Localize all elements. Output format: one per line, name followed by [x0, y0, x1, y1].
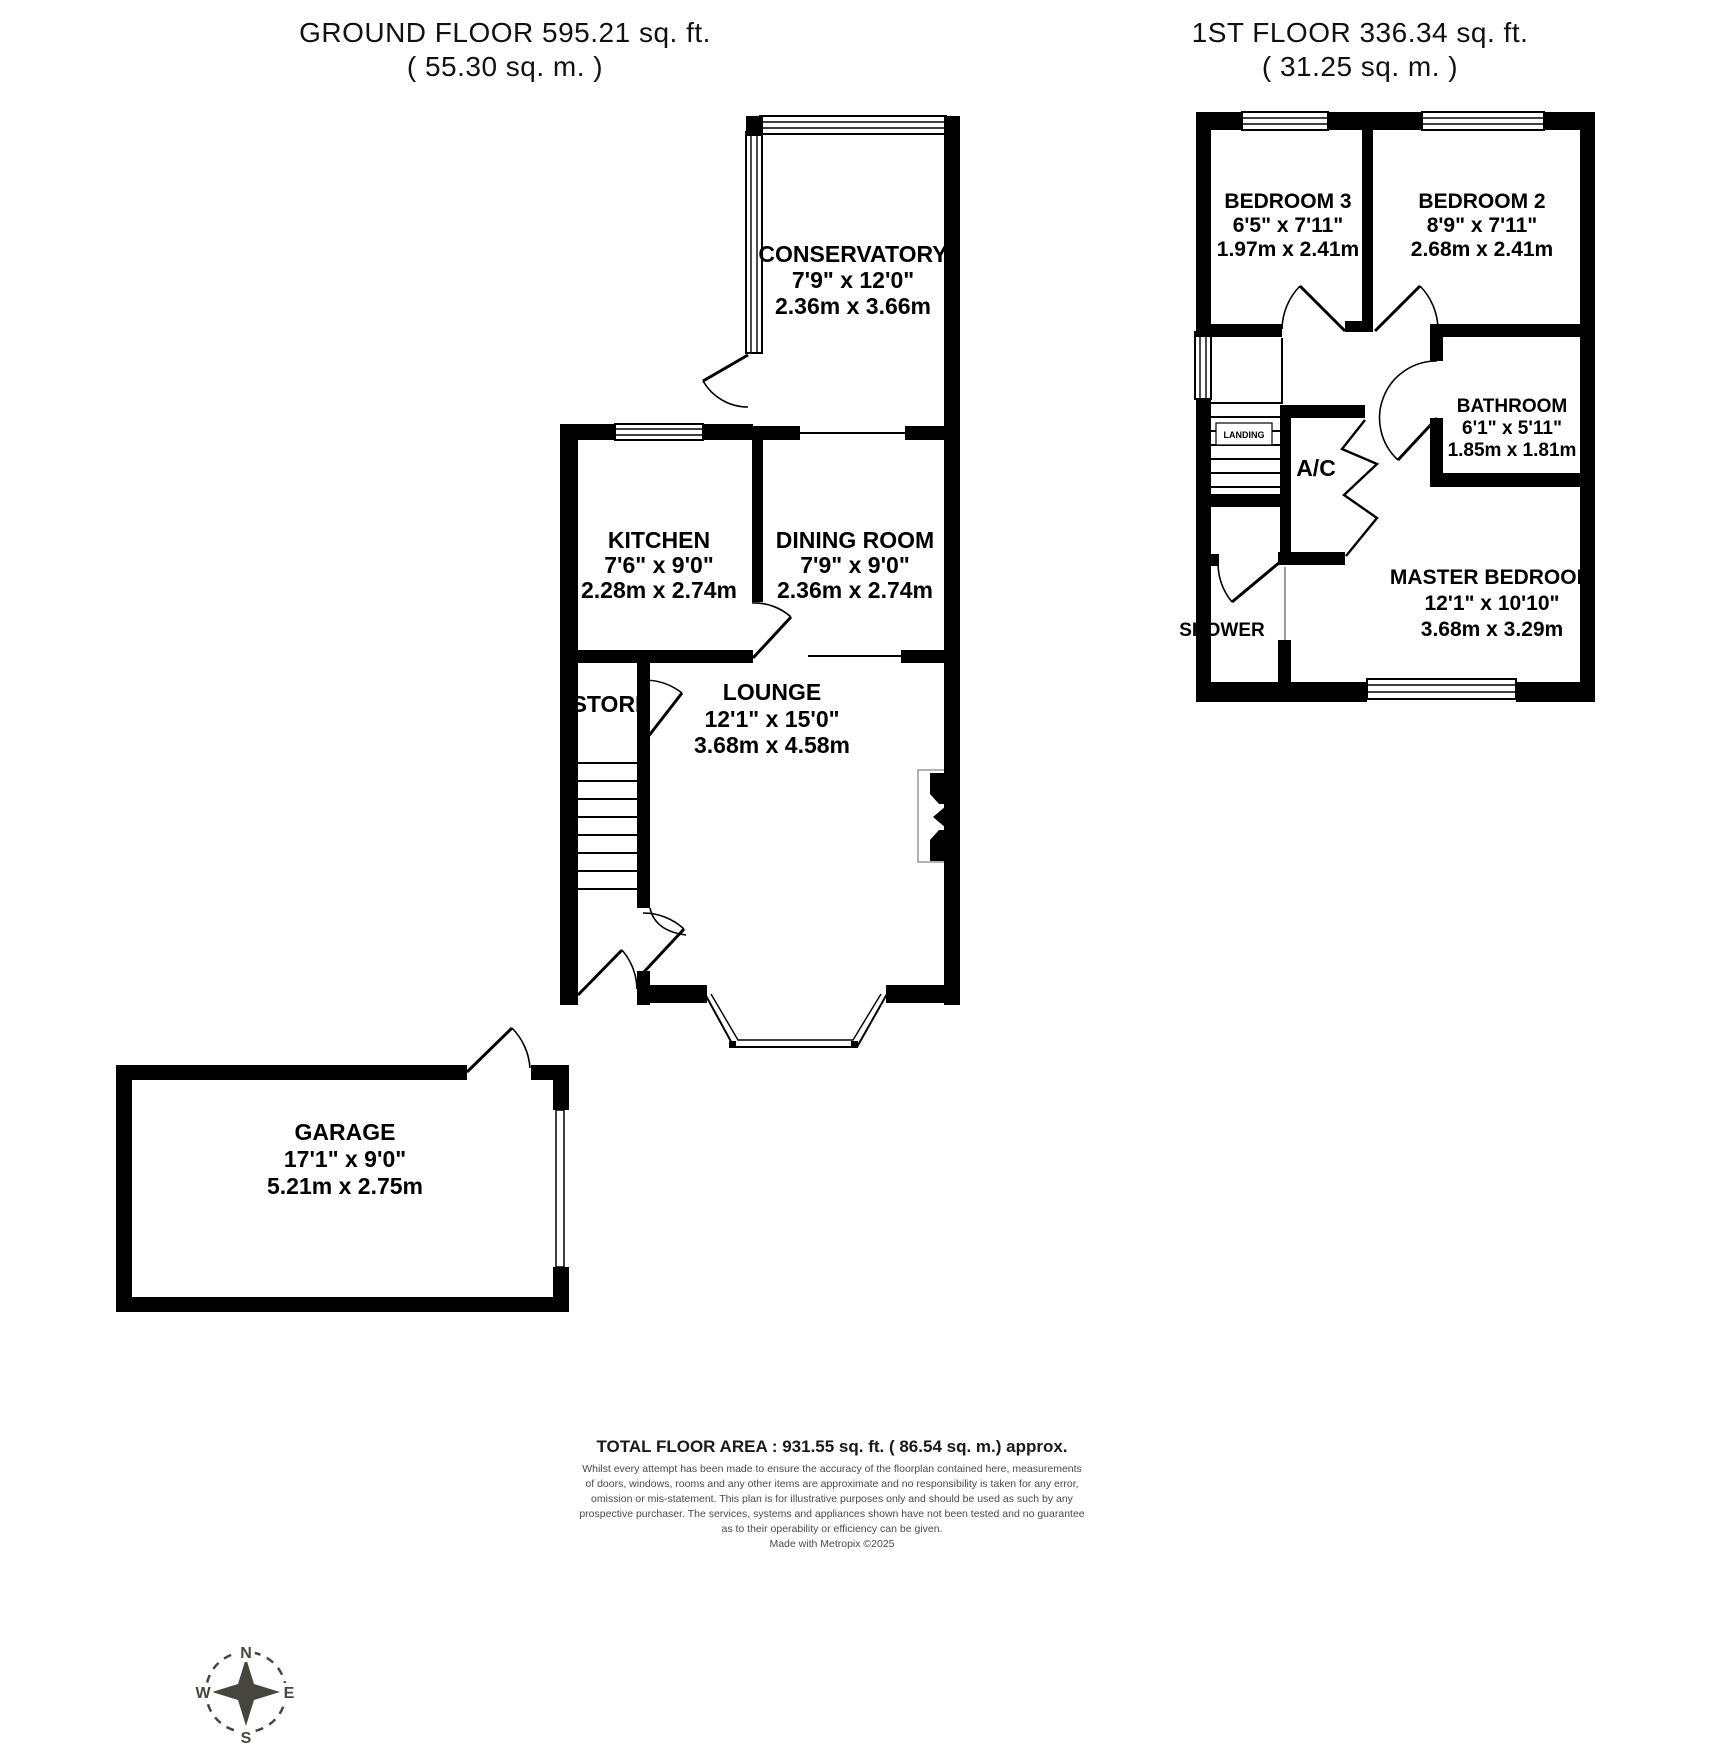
compass-east: E [284, 1685, 295, 1702]
ac-bifold-door [1342, 420, 1377, 556]
disclaimer-line-2: of doors, windows, rooms and any other i… [585, 1478, 1078, 1490]
svg-text:1.97m x 2.41m: 1.97m x 2.41m [1217, 238, 1359, 261]
room-label-kitchen: KITCHEN 7'6" x 9'0" 2.28m x 2.74m [581, 527, 737, 603]
bedroom2-window [1422, 112, 1544, 130]
master-window [1367, 679, 1516, 699]
ground-floor-title: GROUND FLOOR 595.21 sq. ft. [299, 17, 711, 48]
svg-text:1.85m x 1.81m: 1.85m x 1.81m [1448, 440, 1577, 461]
compass-icon: N E W S [195, 1645, 294, 1747]
svg-text:CONSERVATORY: CONSERVATORY [758, 241, 947, 267]
svg-text:12'1" x 10'10": 12'1" x 10'10" [1424, 592, 1559, 615]
total-floor-area: TOTAL FLOOR AREA : 931.55 sq. ft. ( 86.5… [596, 1437, 1067, 1456]
ground-stairs [578, 763, 686, 935]
svg-text:BEDROOM 3: BEDROOM 3 [1224, 190, 1351, 213]
room-label-dining: DINING ROOM 7'9" x 9'0" 2.36m x 2.74m [776, 527, 934, 603]
kitchen-window [615, 424, 703, 440]
room-label-lounge: LOUNGE 12'1" x 15'0" 3.68m x 4.58m [694, 679, 850, 758]
disclaimer-line-3: omission or mis-statement. This plan is … [591, 1493, 1074, 1505]
svg-text:BATHROOM: BATHROOM [1457, 396, 1567, 417]
disclaimer-line-4: prospective purchaser. The services, sys… [579, 1508, 1084, 1520]
bedroom3-window [1242, 112, 1328, 130]
svg-text:6'5" x 7'11": 6'5" x 7'11" [1233, 214, 1344, 237]
compass-north: N [240, 1645, 252, 1662]
conservatory-top-window [760, 116, 946, 134]
room-label-bedroom2: BEDROOM 2 8'9" x 7'11" 2.68m x 2.41m [1411, 190, 1553, 261]
svg-text:17'1" x 9'0": 17'1" x 9'0" [284, 1146, 406, 1172]
room-label-ac: A/C [1296, 455, 1336, 481]
svg-text:BEDROOM 2: BEDROOM 2 [1418, 190, 1545, 213]
svg-text:5.21m x 2.75m: 5.21m x 2.75m [267, 1173, 423, 1199]
room-label-shower: SHOWER [1179, 620, 1265, 641]
compass-west: W [195, 1685, 211, 1702]
disclaimer-line-1: Whilst every attempt has been made to en… [582, 1463, 1082, 1475]
svg-text:12'1" x 15'0": 12'1" x 15'0" [704, 706, 839, 732]
footer: TOTAL FLOOR AREA : 931.55 sq. ft. ( 86.5… [579, 1437, 1084, 1550]
svg-text:2.28m x 2.74m: 2.28m x 2.74m [581, 577, 737, 603]
svg-text:6'1" x 5'11": 6'1" x 5'11" [1462, 418, 1562, 439]
svg-text:2.36m x 3.66m: 2.36m x 3.66m [775, 293, 931, 319]
room-label-landing: LANDING [1216, 423, 1272, 445]
labels: GROUND FLOOR 595.21 sq. ft. ( 55.30 sq. … [267, 17, 1594, 1199]
svg-text:7'9" x 9'0": 7'9" x 9'0" [800, 552, 910, 578]
room-label-garage: GARAGE 17'1" x 9'0" 5.21m x 2.75m [267, 1119, 423, 1199]
svg-text:7'9" x 12'0": 7'9" x 12'0" [792, 267, 914, 293]
svg-text:MASTER BEDROOM: MASTER BEDROOM [1390, 566, 1594, 589]
ground-floor-subtitle: ( 55.30 sq. m. ) [407, 51, 603, 82]
room-label-master: MASTER BEDROOM 12'1" x 10'10" 3.68m x 3.… [1390, 566, 1594, 641]
landing-window [1195, 332, 1211, 399]
svg-text:3.68m x 3.29m: 3.68m x 3.29m [1421, 618, 1563, 641]
svg-text:KITCHEN: KITCHEN [608, 527, 710, 553]
svg-text:2.36m x 2.74m: 2.36m x 2.74m [777, 577, 933, 603]
room-label-conservatory: CONSERVATORY 7'9" x 12'0" 2.36m x 3.66m [758, 241, 947, 319]
svg-text:DINING ROOM: DINING ROOM [776, 527, 934, 553]
svg-text:3.68m x 4.58m: 3.68m x 4.58m [694, 732, 850, 758]
bay-window [705, 994, 887, 1048]
disclaimer-line-5: as to their operability or efficiency ca… [721, 1523, 942, 1535]
room-label-bedroom3: BEDROOM 3 6'5" x 7'11" 1.97m x 2.41m [1217, 190, 1359, 261]
svg-text:8'9" x 7'11": 8'9" x 7'11" [1427, 214, 1538, 237]
svg-text:LANDING: LANDING [1224, 430, 1265, 440]
metropix-credit: Made with Metropix ©2025 [769, 1538, 894, 1550]
svg-text:LOUNGE: LOUNGE [723, 679, 821, 705]
garage-door [556, 1110, 564, 1267]
svg-text:2.68m x 2.41m: 2.68m x 2.41m [1411, 238, 1553, 261]
compass-south: S [241, 1730, 252, 1747]
svg-text:GARAGE: GARAGE [295, 1119, 396, 1145]
first-floor-subtitle: ( 31.25 sq. m. ) [1262, 51, 1458, 82]
room-label-bathroom: BATHROOM 6'1" x 5'11" 1.85m x 1.81m [1448, 396, 1577, 461]
first-floor-title: 1ST FLOOR 336.34 sq. ft. [1192, 17, 1529, 48]
floorplan-canvas: GROUND FLOOR 595.21 sq. ft. ( 55.30 sq. … [0, 0, 1719, 1753]
svg-text:7'6" x 9'0": 7'6" x 9'0" [604, 552, 714, 578]
